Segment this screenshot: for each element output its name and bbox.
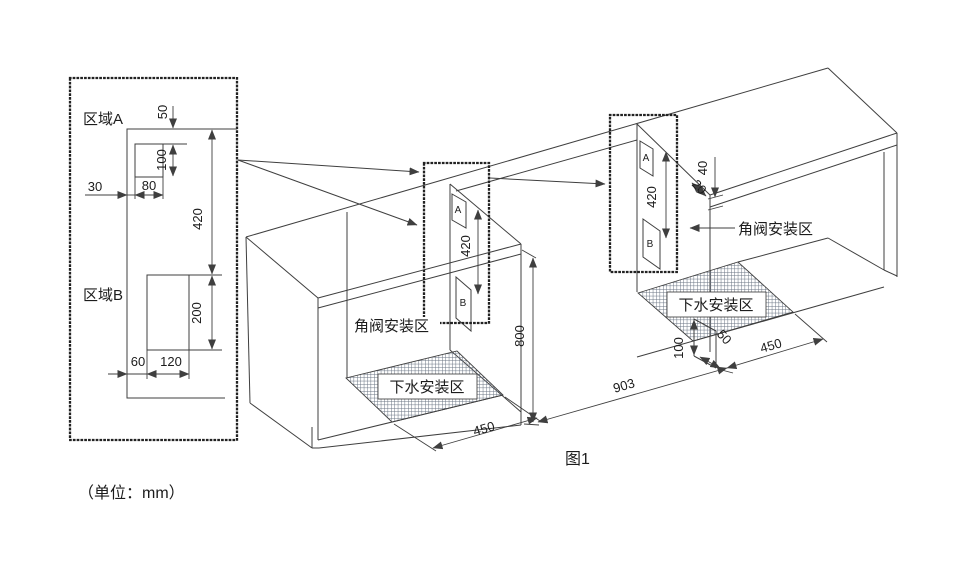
dim-200-detail: 200 [189, 302, 204, 324]
detail-pointer-arrows [238, 160, 605, 225]
dim-100-detail: 100 [154, 149, 169, 171]
dim-420-right: 420 [644, 186, 659, 208]
drain-zone-label-right: 下水安装区 [678, 297, 753, 314]
marker-a-label-right: A [643, 153, 650, 164]
dim-50-detail: 50 [155, 105, 170, 119]
dim-420-detail: 420 [190, 208, 205, 230]
drain-zone-label-middle: 下水安装区 [389, 379, 464, 396]
detail-panel: 区域A 区域B 50 100 420 200 30 80 60 [70, 78, 237, 440]
dim-40: 40 [695, 161, 710, 175]
marker-b-label-right: B [647, 239, 654, 250]
installation-diagram-page: 下水安装区 A B 420 800 450 下水安装区 [0, 0, 970, 568]
marker-b-label-middle: B [460, 298, 467, 309]
zone-b-title: 区域B [83, 287, 123, 304]
dim-420-middle: 420 [458, 235, 473, 257]
zone-a-title: 区域A [83, 111, 123, 128]
dim-120-detail: 120 [160, 354, 182, 369]
valve-zone-label-middle: 角阀安装区 [354, 318, 429, 335]
figure-caption: 图1 [565, 451, 590, 468]
dim-100-right: 100 [671, 337, 686, 359]
dim-30-detail: 30 [88, 179, 102, 194]
dim-800: 800 [512, 325, 527, 347]
dim-903: 903 [611, 375, 636, 395]
dim-450-middle: 450 [471, 418, 496, 438]
marker-a-label-middle: A [455, 205, 462, 216]
dim-60-detail: 60 [131, 354, 145, 369]
zone-b-cutout [147, 275, 189, 350]
valve-zone-label-right: 角阀安装区 [738, 221, 813, 238]
dim-450-right: 450 [758, 335, 783, 355]
back-wall-lines [246, 68, 828, 237]
figure-canvas: 下水安装区 A B 420 800 450 下水安装区 [0, 0, 970, 568]
dim-80-detail: 80 [142, 178, 156, 193]
unit-note: （单位：mm） [78, 484, 185, 502]
dim-20: 20 [689, 177, 710, 198]
right-cabinet: 下水安装区 A B 420 20 40 100 50 450 [538, 68, 897, 422]
